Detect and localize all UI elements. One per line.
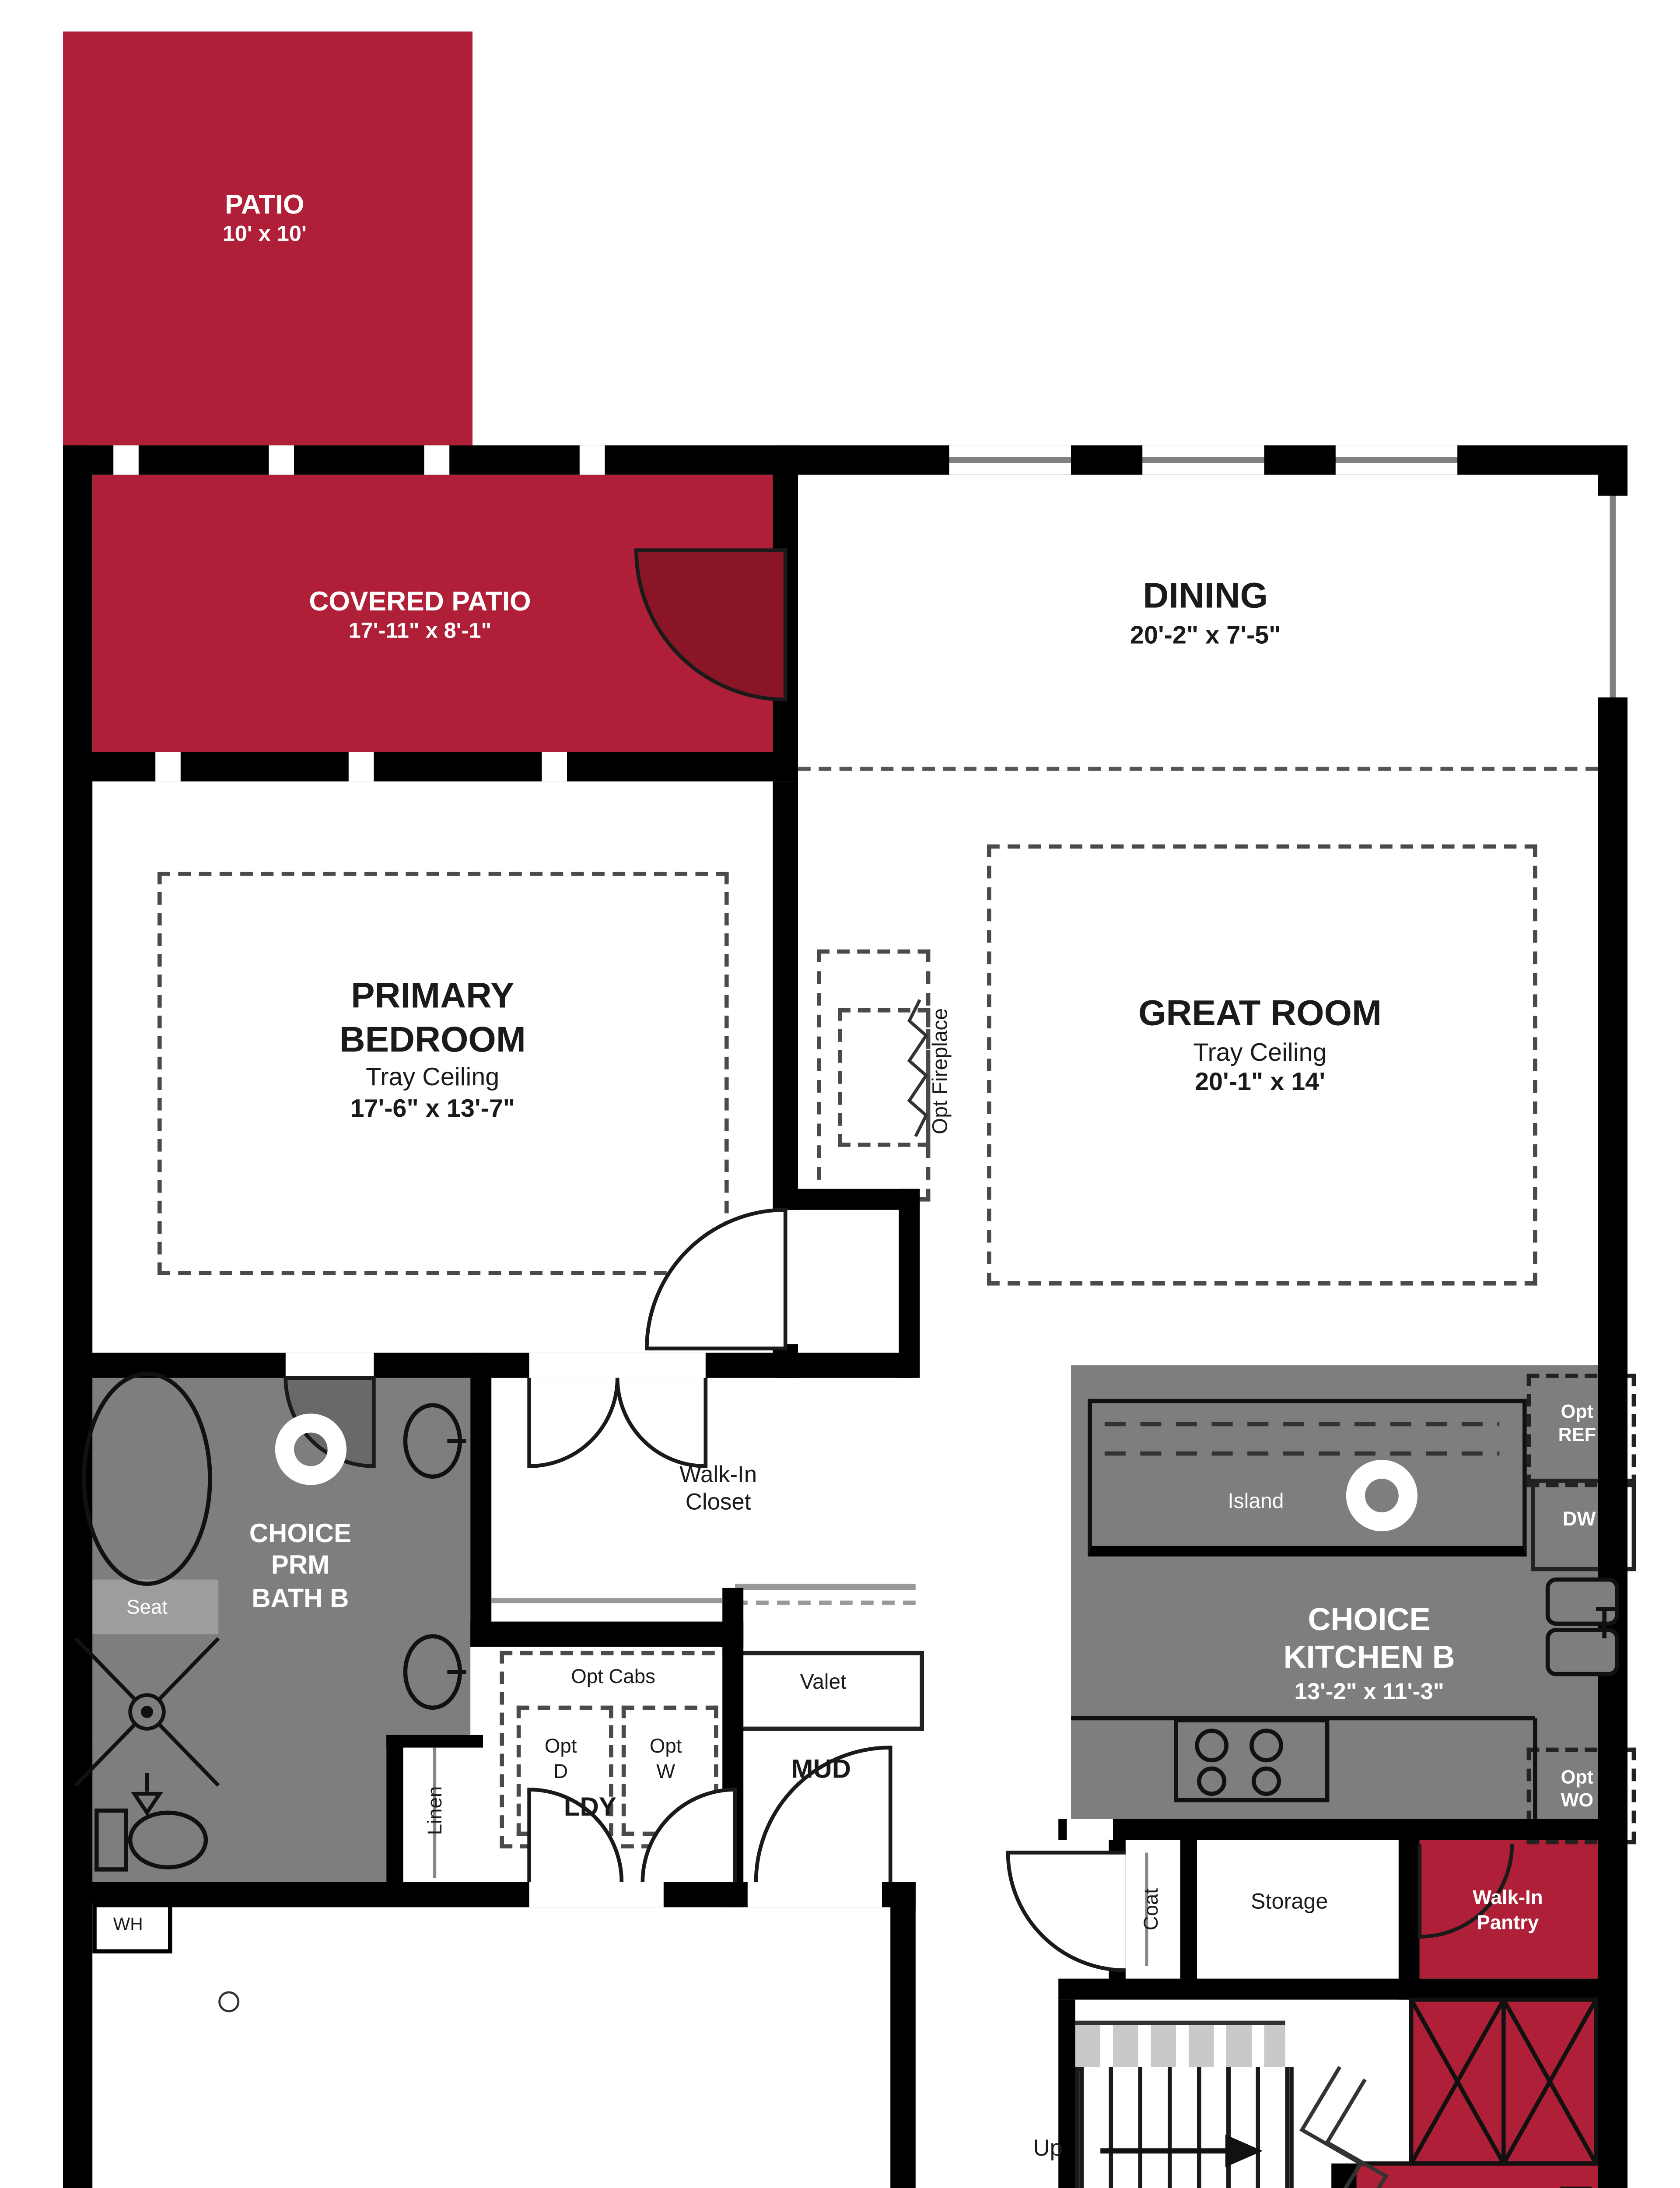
wo-1: Opt [1561, 1767, 1593, 1790]
opt-cabs-label: Opt Cabs [567, 1666, 660, 1690]
dw-label: DW [1563, 1508, 1596, 1533]
patio-dims: 10' x 10' [223, 222, 307, 249]
garage-drain [218, 1991, 239, 2012]
closet-label: Walk-In Closet [679, 1463, 757, 1520]
primary-bedroom-door [647, 1210, 785, 1349]
toilet-icon-primary [97, 1811, 206, 1869]
linen-hall-label: Linen [425, 1786, 449, 1835]
great-room-dims: 20'-1" x 14' [1138, 1068, 1382, 1098]
tub-icon [84, 1374, 210, 1584]
coat-door [1008, 1853, 1126, 1971]
great-room-label: GREAT ROOM Tray Ceiling 20'-1" x 14' [1138, 993, 1382, 1098]
kitchen-line2: KITCHEN B [1284, 1641, 1455, 1680]
dining-dims: 20'-2" x 7'-5" [1130, 620, 1281, 650]
coat-label: Coat [1141, 1888, 1165, 1930]
choice-ring-icon [1346, 1460, 1417, 1531]
primary-bedroom-name2: BEDROOM [339, 1020, 526, 1063]
primary-bath-label: CHOICE PRM BATH B [249, 1519, 351, 1615]
kitchen-dims: 13'-2" x 11'-3" [1284, 1680, 1455, 1708]
opt-cell-x-marks [1357, 2000, 1598, 2163]
door-swing-arcs [286, 551, 1512, 2188]
covered-patio-name: COVERED PATIO [309, 586, 531, 619]
valet-label: Valet [800, 1672, 847, 1697]
kitchen-sink-icon [1548, 1580, 1617, 1674]
choice-ring-icon [275, 1413, 346, 1485]
ldy-label: LDY [564, 1792, 616, 1824]
stairs-up-label: Up [1033, 2137, 1063, 2165]
kitchen-line1: CHOICE [1284, 1602, 1455, 1641]
primary-bath-line2: PRM [249, 1551, 351, 1583]
kitchen-label: CHOICE KITCHEN B 13'-2" x 11'-3" [1284, 1602, 1455, 1708]
wo-2: WO [1561, 1790, 1593, 1813]
opt-washer-label: Opt W [650, 1736, 682, 1785]
opt-ref-label: Opt REF [1558, 1401, 1596, 1447]
ldy-door-right [643, 1790, 735, 1882]
stair-up-arrow [1100, 2136, 1260, 2166]
pantry-line1: Walk-In [1473, 1887, 1543, 1911]
closet-door-right [617, 1378, 706, 1466]
architectural-linework [0, 0, 1680, 2188]
dining-name: DINING [1130, 576, 1281, 620]
primary-bath-line1: CHOICE [249, 1519, 351, 1551]
bath-sink-icon [405, 1405, 466, 1708]
primary-bedroom-dims: 17'-6" x 13'-7" [339, 1094, 526, 1125]
primary-bedroom-name1: PRIMARY [339, 976, 526, 1020]
dining-label: DINING 20'-2" x 7'-5" [1130, 576, 1281, 651]
closet-line1: Walk-In [679, 1463, 757, 1491]
mud-label: MUD [791, 1755, 851, 1787]
covered-patio-dims: 17'-11" x 8'-1" [309, 619, 531, 645]
opt-w-1: Opt [650, 1736, 682, 1760]
great-room-ceiling: Tray Ceiling [1138, 1037, 1382, 1068]
shower-icon [76, 1638, 218, 1813]
cooktop-icon [1176, 1720, 1327, 1800]
floor-plan: PATIO 10' x 10' COVERED PATIO 17'-11" x … [0, 0, 1680, 2188]
primary-bath-line3: BATH B [249, 1583, 351, 1615]
opt-d-1: Opt [545, 1736, 577, 1760]
closet-door-left [529, 1378, 618, 1466]
opt-d-2: D [545, 1760, 577, 1785]
wh-label: WH [113, 1913, 143, 1935]
opt-wo-label: Opt WO [1561, 1767, 1593, 1813]
opt-w-2: W [650, 1760, 682, 1785]
ref-2: REF [1558, 1424, 1596, 1447]
covered-patio-label: COVERED PATIO 17'-11" x 8'-1" [309, 586, 531, 646]
seat-label: Seat [126, 1597, 168, 1621]
primary-bedroom-ceiling: Tray Ceiling [339, 1063, 526, 1094]
storage-label: Storage [1251, 1890, 1328, 1916]
pantry-line2: Pantry [1473, 1911, 1543, 1936]
ref-1: Opt [1558, 1401, 1596, 1424]
island-label: Island [1228, 1491, 1284, 1517]
patio-label: PATIO 10' x 10' [223, 188, 307, 249]
pantry-label: Walk-In Pantry [1473, 1887, 1543, 1936]
opt-dryer-label: Opt D [545, 1736, 577, 1785]
opt-fireplace-label: Opt Fireplace [930, 1008, 956, 1134]
patio-name: PATIO [223, 188, 307, 221]
great-room-name: GREAT ROOM [1138, 993, 1382, 1037]
fireplace-squiggle [909, 1000, 926, 1136]
stair-break-line [1302, 2067, 1386, 2188]
floor-plan-page: PATIO 10' x 10' COVERED PATIO 17'-11" x … [0, 0, 1680, 2188]
closet-line2: Closet [679, 1491, 757, 1519]
covered-patio-door [636, 551, 785, 700]
island-counter-dashes [1105, 1424, 1499, 1453]
primary-bedroom-label: PRIMARY BEDROOM Tray Ceiling 17'-6" x 13… [339, 976, 526, 1124]
